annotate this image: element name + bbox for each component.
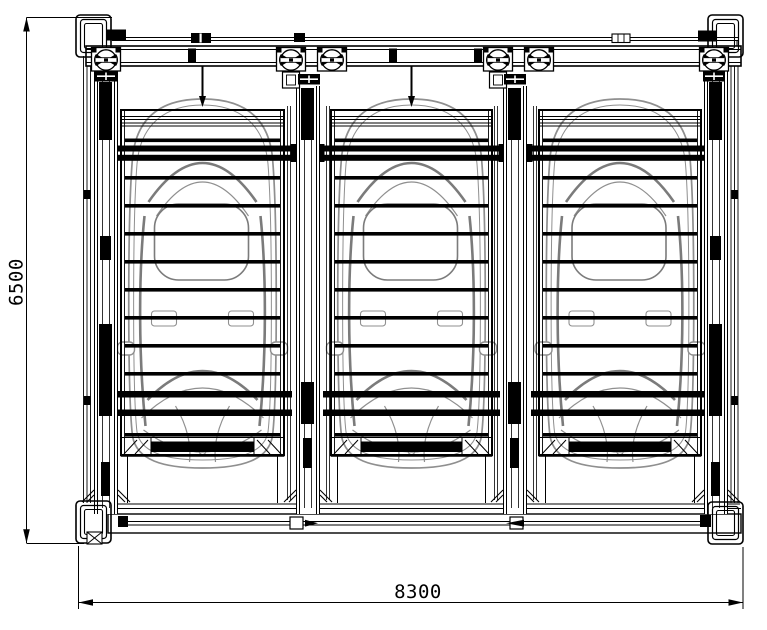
platform-slat	[335, 232, 488, 236]
platform-slat	[335, 260, 488, 264]
corner-bracket-bottom-left	[76, 501, 111, 544]
cable-clamp	[294, 33, 305, 42]
carriage-block	[508, 382, 521, 424]
carriage-block	[100, 236, 111, 260]
cross-member	[531, 146, 709, 152]
carriage-block	[709, 324, 722, 416]
carriage-block	[510, 438, 519, 468]
beam-clamp	[188, 49, 196, 63]
platform-end-beam	[151, 442, 254, 453]
pulley-5	[525, 48, 554, 72]
cross-member	[113, 391, 292, 398]
left-guide-post	[82, 66, 130, 514]
carriage-block	[301, 382, 314, 424]
carriage-block	[303, 438, 312, 468]
cross-member	[113, 410, 292, 417]
platform-slat	[125, 372, 280, 376]
rail-lock-block	[84, 396, 91, 405]
platform-slat	[335, 176, 488, 180]
carriage-block	[709, 82, 722, 140]
pulley-6	[700, 48, 729, 72]
platform-slat	[543, 316, 697, 320]
pulley-bracket	[490, 72, 507, 88]
dimension-arrow	[79, 599, 94, 606]
rail-lock-block	[84, 190, 91, 199]
left-side-member	[84, 56, 91, 503]
platform-slat	[543, 232, 697, 236]
rail-lock-block	[732, 396, 739, 405]
cross-member	[531, 410, 709, 417]
platform-slat	[543, 260, 697, 264]
platform-slat	[125, 176, 280, 180]
dimension-arrow	[23, 529, 30, 543]
cable-tensioner	[290, 517, 303, 529]
rail-lock-block	[732, 190, 739, 199]
cable-clamp	[106, 30, 126, 41]
side-mirror	[688, 342, 705, 355]
beam-clamp	[389, 49, 397, 63]
platform-slat	[125, 344, 280, 348]
pulley-1	[92, 48, 121, 72]
right-guide-post	[692, 66, 740, 514]
platform-slat	[335, 316, 488, 320]
platform-slat	[335, 372, 488, 376]
rope-fitting	[703, 71, 725, 82]
pulley-bracket	[283, 72, 300, 88]
cross-member	[323, 155, 500, 161]
hoist-cable-bay-2	[408, 66, 415, 107]
platform-slat	[335, 344, 488, 348]
pulley-3	[318, 48, 347, 72]
side-mirror	[535, 342, 552, 355]
dimension-arrow	[729, 599, 744, 606]
parking-lift-plan-page: 6500 8300	[0, 0, 767, 630]
cross-member	[113, 146, 292, 152]
carriage-block	[508, 88, 521, 140]
right-side-member	[731, 56, 738, 503]
carriage-block	[711, 462, 720, 496]
cross-member	[323, 391, 500, 398]
top-beam	[86, 30, 741, 67]
side-mirror	[480, 342, 497, 355]
cross-member	[531, 391, 709, 398]
width-dimension-label: 8300	[394, 581, 442, 603]
platform-slat	[543, 204, 697, 208]
platform-slat	[335, 204, 488, 208]
platform-end-beam	[569, 442, 671, 453]
rope-fitting	[298, 74, 320, 85]
rope-fitting	[95, 71, 117, 82]
platform-slat	[125, 232, 280, 236]
platform-slat	[543, 176, 697, 180]
platform-slat	[125, 260, 280, 264]
height-dimension-label: 6500	[6, 258, 28, 306]
bottom-beam	[95, 504, 741, 533]
platform-slat	[543, 288, 697, 292]
side-mirror	[327, 342, 344, 355]
platform-slat	[125, 316, 280, 320]
platform-slat	[335, 288, 488, 292]
carriage-block	[99, 324, 112, 416]
cable-connector	[612, 34, 630, 43]
platform-slat	[543, 344, 697, 348]
platform-end-beam	[361, 442, 462, 453]
platform-slat	[125, 288, 280, 292]
carriage-block	[710, 236, 721, 260]
cable-clamp	[698, 31, 716, 42]
platforms-layer	[108, 110, 714, 503]
beam-clamp	[474, 49, 482, 63]
cross-member	[323, 410, 500, 417]
platform-slat	[543, 372, 697, 376]
carriage-block	[99, 82, 112, 140]
hoist-cable-bay-1	[199, 66, 206, 107]
parking-lift-plan-drawing: 6500 8300	[0, 0, 767, 630]
cross-member	[531, 155, 709, 161]
width-dimension: 8300	[79, 546, 744, 609]
dimension-arrow	[23, 18, 30, 32]
platform-slat	[125, 204, 280, 208]
rope-fitting	[504, 74, 526, 85]
cross-member	[323, 146, 500, 152]
carriage-block	[101, 462, 110, 496]
carriage-block	[301, 88, 314, 140]
cross-member	[113, 155, 292, 161]
